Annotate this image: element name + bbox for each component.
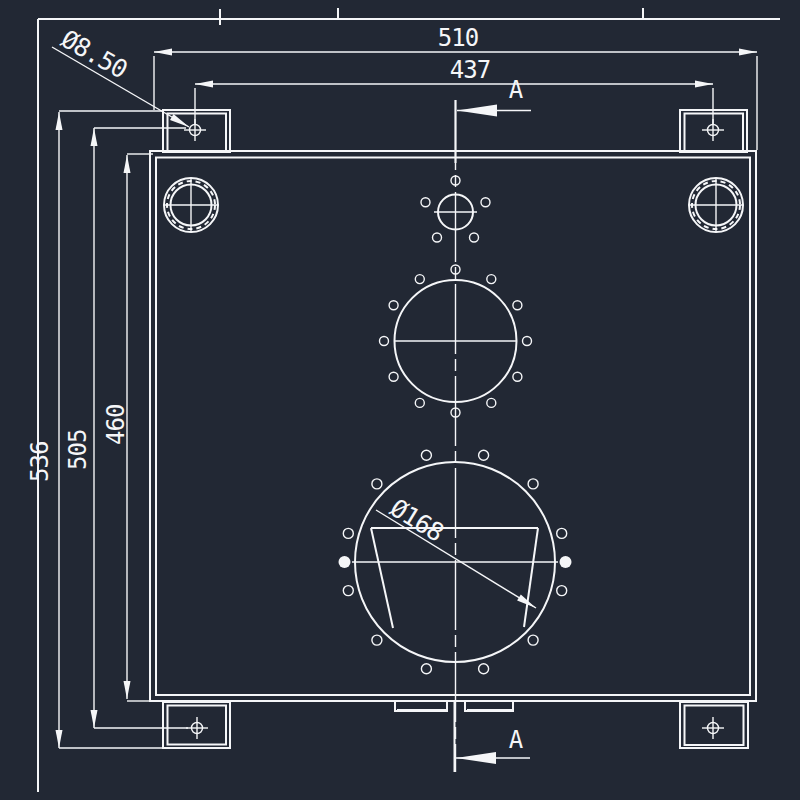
overall-width-label: 510 <box>438 24 478 52</box>
section-label-top: A <box>509 76 524 104</box>
large-opening-diameter-label: Ø168 <box>385 493 448 547</box>
mount-hole-span-height-label: 505 <box>64 430 92 470</box>
cad-drawing-canvas: Ø168 Ø8.50 510 437 536 <box>0 0 800 800</box>
grommet-right <box>689 178 743 232</box>
dimension-mount-hole-span-width: 437 <box>195 56 713 124</box>
mount-hole-span-width-label: 437 <box>450 56 490 84</box>
chute-outline <box>371 528 538 628</box>
main-plate-outline <box>150 151 756 701</box>
overall-height-label: 536 <box>26 442 54 482</box>
section-label-bottom: A <box>509 726 524 754</box>
dimension-overall-height: 536 <box>26 111 164 748</box>
mount-tab-bottom-right <box>680 702 748 748</box>
section-mark-top: A <box>456 76 532 163</box>
mount-tab-bottom-left <box>163 702 230 748</box>
mount-hole-diameter-label: Ø8.50 <box>56 24 131 84</box>
grommet-left <box>164 178 218 232</box>
cad-part-drawing: Ø168 Ø8.50 510 437 536 <box>0 0 800 800</box>
body-height-label: 460 <box>102 405 130 445</box>
